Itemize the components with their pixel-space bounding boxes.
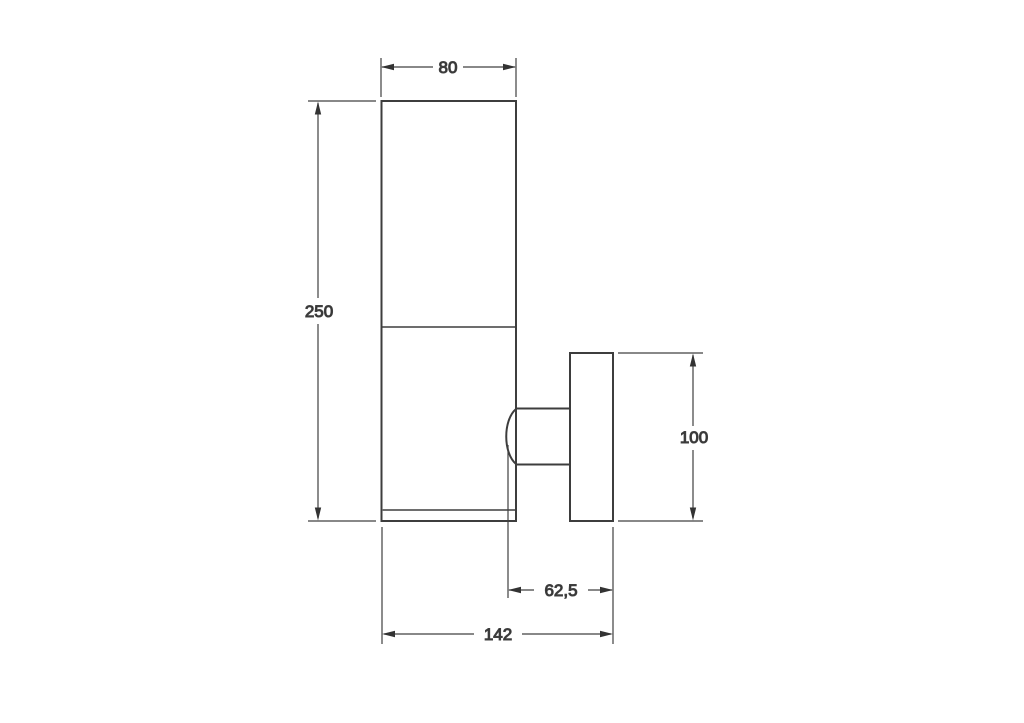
lamp-tube xyxy=(382,101,517,521)
dimension-plate-height: 100 xyxy=(618,353,708,521)
dimension-arm-depth: 62,5 xyxy=(508,445,613,600)
arrow-left-icon xyxy=(508,587,521,593)
arrow-down-icon xyxy=(315,508,321,521)
arrow-up-icon xyxy=(690,354,696,367)
arrow-left-icon xyxy=(381,64,394,70)
lamp-tube-outline xyxy=(382,101,517,521)
dimension-label-tube-width: 80 xyxy=(439,58,458,77)
dimension-label-total-depth: 142 xyxy=(484,625,512,644)
dimension-tube-height: 250 xyxy=(305,101,376,521)
arrow-right-icon xyxy=(600,587,613,593)
arrow-up-icon xyxy=(315,102,321,115)
dimension-tube-width: 80 xyxy=(381,58,516,97)
wall-plate xyxy=(570,353,613,521)
wall-lamp-dimension-drawing: 80 250 100 62,5 xyxy=(0,0,1024,723)
dimension-label-tube-height: 250 xyxy=(305,302,333,321)
dimension-label-plate-height: 100 xyxy=(680,428,708,447)
dimension-total-depth: 142 xyxy=(382,527,613,644)
arrow-right-icon xyxy=(600,631,613,637)
arrow-left-icon xyxy=(382,631,395,637)
arrow-right-icon xyxy=(503,64,516,70)
technical-drawing-canvas: 80 250 100 62,5 xyxy=(0,0,1024,723)
wall-plate-outline xyxy=(570,353,613,521)
arrow-down-icon xyxy=(690,508,696,521)
dimension-label-arm-depth: 62,5 xyxy=(544,581,577,600)
